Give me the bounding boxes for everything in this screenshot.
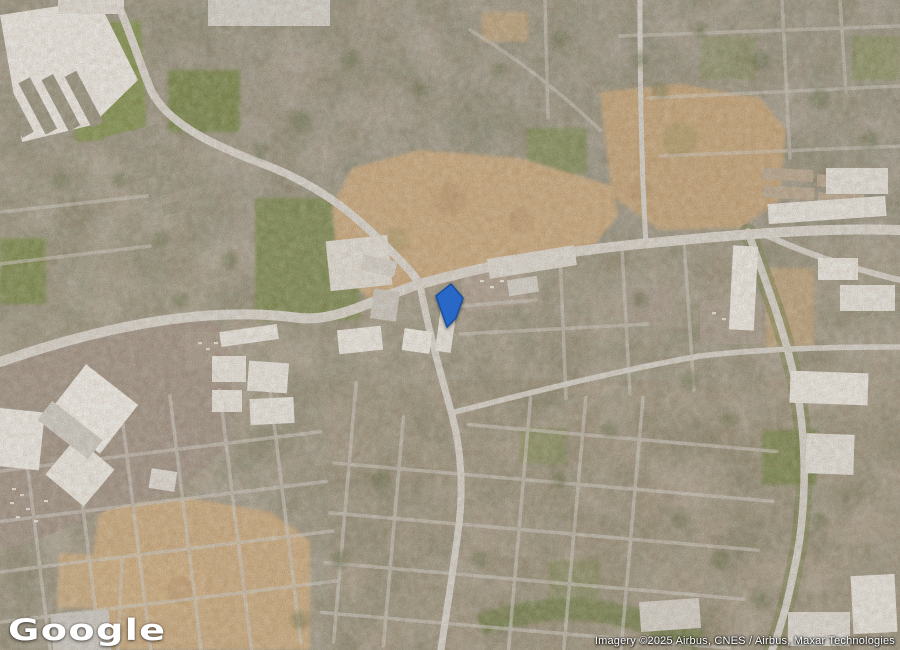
satellite-imagery [0,0,900,650]
map-canvas[interactable]: Google Imagery ©2025 Airbus, CNES / Airb… [0,0,900,650]
imagery-attribution: Imagery ©2025 Airbus, CNES / Airbus, Max… [595,635,895,647]
google-logo[interactable]: Google [8,613,166,647]
